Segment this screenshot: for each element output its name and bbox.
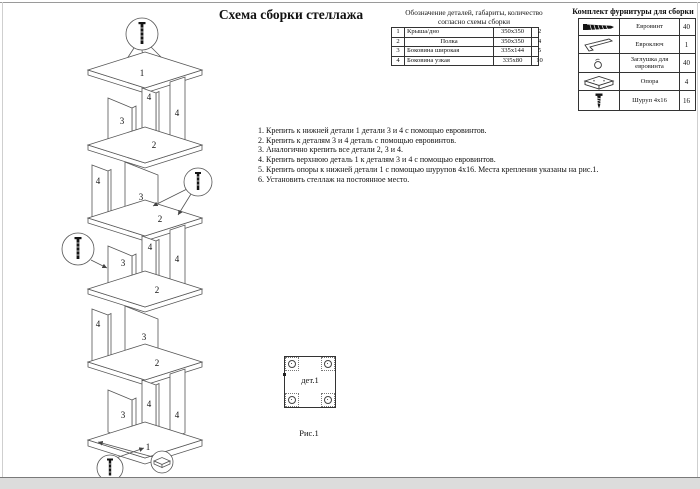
part-qty: 10 xyxy=(532,57,547,66)
instruction-step: 1. Крепить к нижней детали 1 детали 3 и … xyxy=(258,126,688,136)
part-label: 4 xyxy=(148,242,153,252)
assembly-instructions: 1. Крепить к нижней детали 1 детали 3 и … xyxy=(258,126,688,184)
figure-det1: дет.1 Рис.1 xyxy=(284,356,340,438)
figure-caption: Рис.1 xyxy=(284,428,334,438)
part-name: Боковина узкая xyxy=(405,57,494,66)
hardware-name: Евровинт xyxy=(620,19,680,35)
page-frame-left xyxy=(2,2,3,478)
shelf-assembly-diagram: 1 3 4 4 2 4 3 xyxy=(50,10,240,480)
hexkey-icon xyxy=(581,37,617,52)
table-row: 1 Крыша/дно 350х350 2 xyxy=(392,28,538,38)
euroscrew-icon xyxy=(581,20,617,34)
instruction-step: 5. Крепить опоры к нижней детали 1 с пом… xyxy=(258,165,688,175)
part-label: 4 xyxy=(175,410,180,420)
part-label: 4 xyxy=(175,108,180,118)
part-size: 335х144 xyxy=(494,47,532,56)
hardware-qty: 40 xyxy=(680,19,693,35)
hardware-name: Заглушка для евровинта xyxy=(620,54,680,72)
screw-hole-icon xyxy=(324,360,332,368)
part-label: 2 xyxy=(152,140,157,150)
det1-label: дет.1 xyxy=(285,375,335,385)
table-row: Евроключ 1 xyxy=(579,36,695,54)
part-label: 4 xyxy=(96,319,101,329)
instruction-step: 6. Установить стеллаж на постоянное мест… xyxy=(258,175,688,185)
assembly-sheet: Схема сборки стеллажа Обозначение детале… xyxy=(0,0,700,489)
part-num: 4 xyxy=(392,57,405,66)
hardware-qty: 40 xyxy=(680,54,693,72)
hardware-qty: 1 xyxy=(680,36,693,53)
det1-panel-drawing: дет.1 xyxy=(284,356,336,408)
parts-table-header: Обозначение деталей, габариты, количеств… xyxy=(381,8,567,26)
corner-mount xyxy=(321,357,335,371)
table-row: 3 Боковина широкая 335х144 5 xyxy=(392,47,538,57)
part-label: 3 xyxy=(142,332,147,342)
instruction-step: 2. Крепить к деталям 3 и 4 деталь с помо… xyxy=(258,136,688,146)
parts-table-header-line1: Обозначение деталей, габариты, количеств… xyxy=(381,8,567,17)
part-num: 3 xyxy=(392,47,405,56)
part-qty: 4 xyxy=(532,38,547,47)
part-label: 2 xyxy=(155,358,160,368)
instruction-step: 4. Крепить верхнюю деталь 1 к деталям 3 … xyxy=(258,155,688,165)
part-label: 4 xyxy=(96,176,101,186)
part-num: 2 xyxy=(392,38,405,47)
page-frame-top xyxy=(0,2,700,3)
table-row: Евровинт 40 xyxy=(579,19,695,36)
part-label: 2 xyxy=(155,285,160,295)
page-frame-strip xyxy=(0,478,700,489)
corner-mount xyxy=(285,393,299,407)
screw-hole-icon xyxy=(288,396,296,404)
part-name: Боковина широкая xyxy=(405,47,494,56)
foot-icon xyxy=(581,74,617,90)
part-label: 1 xyxy=(146,442,151,452)
foot-callout-bottom xyxy=(151,451,173,473)
table-row: 4 Боковина узкая 335х80 10 xyxy=(392,57,538,66)
part-label: 3 xyxy=(121,258,126,268)
part-name: Крыша/дно xyxy=(405,28,494,37)
part-label: 3 xyxy=(121,410,126,420)
part-size: 350х350 xyxy=(494,28,532,37)
part-label: 4 xyxy=(147,399,152,409)
hardware-name: Евроключ xyxy=(620,36,680,53)
table-row: 2 Полка 350х350 4 xyxy=(392,38,538,48)
part-qty: 2 xyxy=(532,28,547,37)
part-label: 3 xyxy=(120,116,125,126)
hardware-qty: 4 xyxy=(680,73,693,90)
page-frame-right xyxy=(697,2,698,478)
part-label: 2 xyxy=(158,214,163,224)
part-num: 1 xyxy=(392,28,405,37)
part-qty: 5 xyxy=(532,47,547,56)
instruction-step: 3. Аналогично крепить все детали 2, 3 и … xyxy=(258,145,688,155)
table-row: Опора 4 xyxy=(579,73,695,91)
part-size: 350х350 xyxy=(494,38,532,47)
corner-mount xyxy=(321,393,335,407)
euroscrew-callout-left xyxy=(62,233,107,268)
hardware-qty: 16 xyxy=(680,91,693,110)
parts-table: 1 Крыша/дно 350х350 2 2 Полка 350х350 4 … xyxy=(391,27,539,66)
part-name: Полка xyxy=(405,38,494,47)
part-label: 4 xyxy=(147,92,152,102)
cap-icon xyxy=(581,56,617,71)
hardware-table: Евровинт 40 Евроключ 1 Заглушка для евро… xyxy=(578,18,696,111)
part-label: 1 xyxy=(140,68,145,78)
hardware-name: Шуруп 4х16 xyxy=(620,91,680,110)
hardware-name: Опора xyxy=(620,73,680,90)
part-size: 335х80 xyxy=(494,57,532,66)
screw-icon xyxy=(581,92,617,110)
hardware-table-title: Комплект фурнитуры для сборки xyxy=(569,7,697,16)
parts-table-header-line2: согласно схемы сборки xyxy=(381,17,567,26)
corner-mount xyxy=(285,357,299,371)
screw-hole-icon xyxy=(288,360,296,368)
screw-hole-icon xyxy=(324,396,332,404)
table-row: Шуруп 4х16 16 xyxy=(579,91,695,110)
table-row: Заглушка для евровинта 40 xyxy=(579,54,695,73)
part-label: 4 xyxy=(175,254,180,264)
